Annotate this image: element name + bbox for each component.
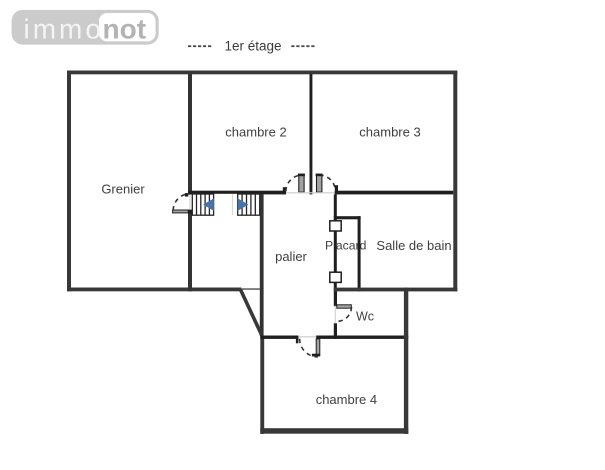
svg-text:Salle de bain: Salle de bain [376,238,451,253]
svg-text:1er étage: 1er étage [224,39,281,54]
svg-text:Wc: Wc [356,310,374,324]
svg-text:palier: palier [275,249,307,264]
svg-text:chambre 3: chambre 3 [359,125,420,140]
svg-text:not: not [103,14,147,45]
svg-text:immo: immo [24,14,104,45]
svg-text:chambre 2: chambre 2 [225,125,286,140]
svg-text:chambre 4: chambre 4 [316,392,377,407]
svg-text:Grenier: Grenier [101,182,145,197]
